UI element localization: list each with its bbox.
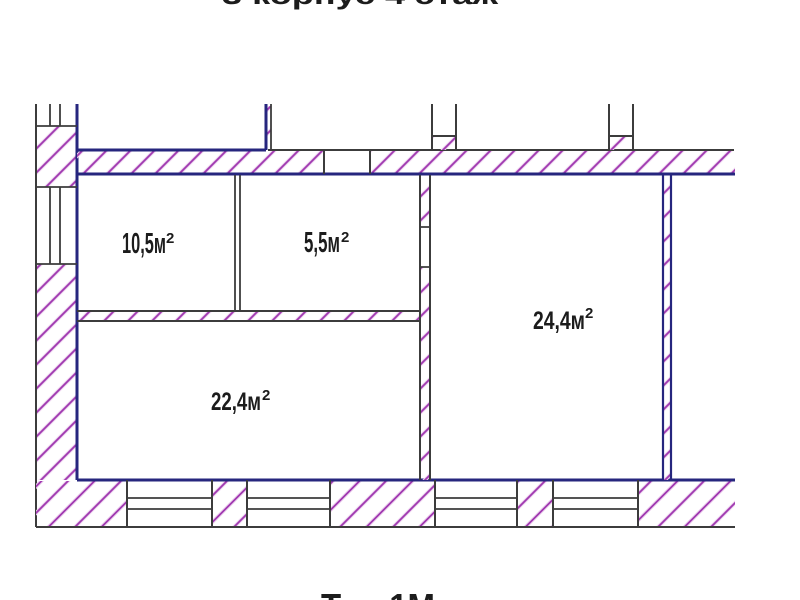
- svg-text:3 корпус 4 этаж: 3 корпус 4 этаж: [222, 0, 499, 10]
- svg-text:Тип 1М: Тип 1М: [321, 586, 435, 600]
- svg-text:2: 2: [341, 229, 349, 246]
- svg-text:2: 2: [262, 387, 270, 404]
- svg-text:5,5м: 5,5м: [304, 227, 340, 259]
- svg-text:2: 2: [166, 230, 174, 247]
- svg-text:10,5м: 10,5м: [122, 228, 166, 260]
- svg-text:22,4м: 22,4м: [211, 388, 261, 416]
- svg-text:2: 2: [585, 305, 593, 322]
- svg-text:24,4м: 24,4м: [533, 307, 585, 335]
